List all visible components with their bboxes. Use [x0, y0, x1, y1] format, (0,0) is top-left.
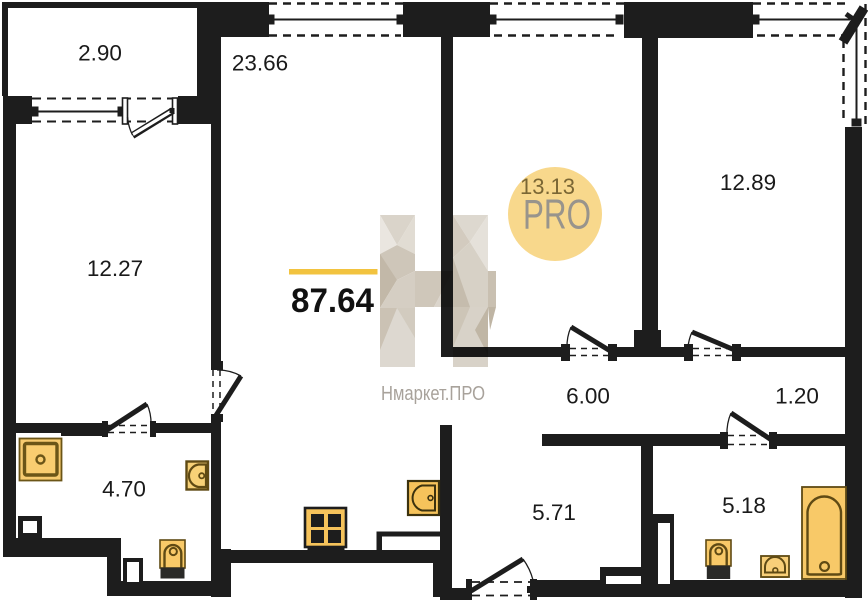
svg-text:12.89: 12.89 [720, 170, 776, 195]
svg-text:Нмаркет.ПРО: Нмаркет.ПРО [381, 383, 485, 405]
svg-text:PRO: PRO [523, 191, 591, 238]
svg-text:5.71: 5.71 [532, 500, 576, 525]
svg-text:2.90: 2.90 [78, 41, 122, 66]
svg-text:6.00: 6.00 [566, 384, 610, 409]
svg-text:12.27: 12.27 [87, 256, 143, 281]
svg-text:23.66: 23.66 [232, 51, 288, 76]
svg-text:1.20: 1.20 [775, 384, 819, 409]
svg-text:5.18: 5.18 [722, 493, 766, 518]
svg-text:87.64: 87.64 [291, 282, 374, 320]
svg-text:4.70: 4.70 [102, 477, 146, 502]
